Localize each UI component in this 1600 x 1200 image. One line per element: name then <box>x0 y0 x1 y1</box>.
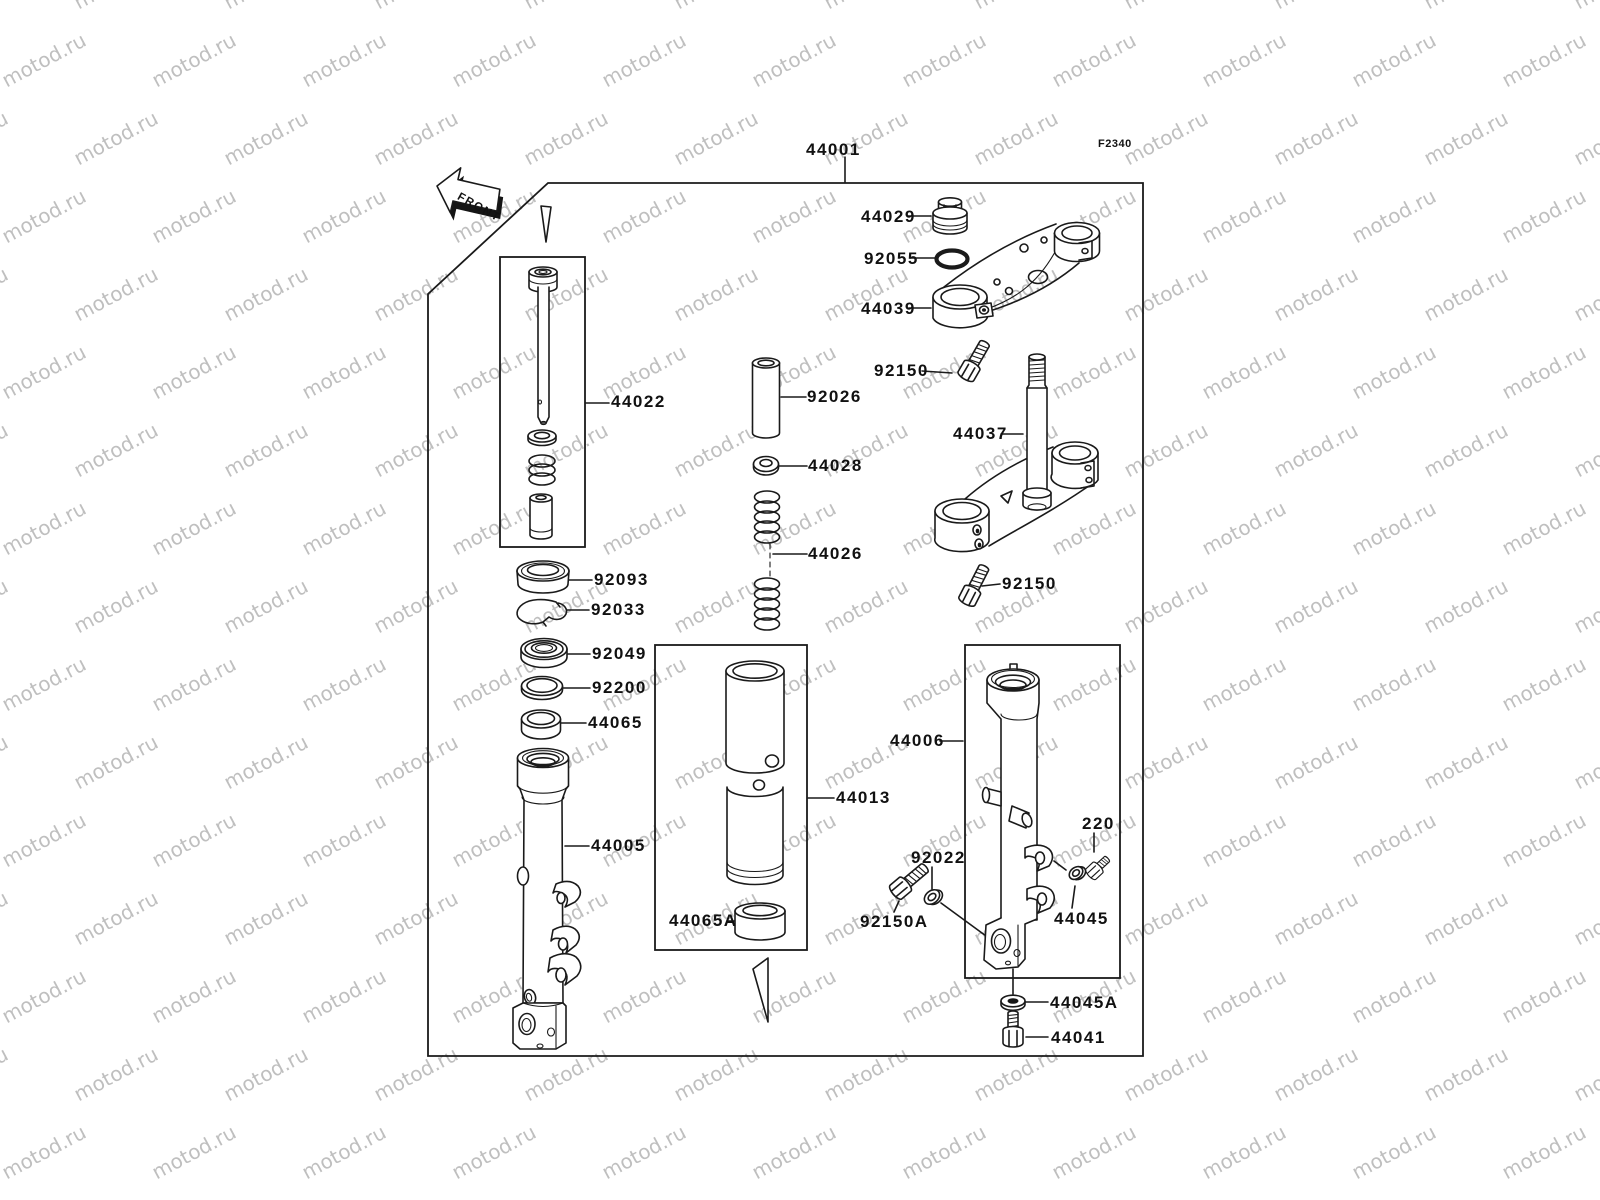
part-label-92033: 92033 <box>591 600 646 620</box>
part-label-92150-upper: 92150 <box>874 361 929 381</box>
bolt-220 <box>1084 853 1113 881</box>
o-ring-drawing <box>937 251 968 268</box>
part-label-220: 220 <box>1082 814 1115 834</box>
damper-rod-kit-drawing <box>528 267 557 539</box>
part-label-44045: 44045 <box>1054 909 1109 929</box>
parts-diagram-drawing: FRONT <box>0 0 1600 1200</box>
part-label-44005: 44005 <box>591 836 646 856</box>
part-label-44013: 44013 <box>836 788 891 808</box>
outer-tube-44005-drawing <box>513 749 581 1050</box>
fork-spring-drawing <box>755 491 780 630</box>
bushing-44065-drawing <box>522 710 561 739</box>
pointer-wedge-center <box>753 958 768 1022</box>
part-label-44026: 44026 <box>808 544 863 564</box>
part-label-92150-lower: 92150 <box>1002 574 1057 594</box>
part-label-44039: 44039 <box>861 299 916 319</box>
washer-44028 <box>754 457 779 476</box>
retaining-clip-92033-drawing <box>517 600 566 626</box>
part-label-92093: 92093 <box>594 570 649 590</box>
fork-cap-drawing <box>933 198 967 234</box>
part-label-44041: 44041 <box>1051 1028 1106 1048</box>
washer-44045a <box>1001 995 1025 1010</box>
figure-code-label: F2340 <box>1098 137 1132 151</box>
part-label-92022: 92022 <box>911 848 966 868</box>
part-label-92200: 92200 <box>592 678 647 698</box>
part-label-44065a: 44065A <box>669 911 738 931</box>
dust-seal-92093-drawing <box>517 561 569 593</box>
part-label-44045a: 44045A <box>1050 993 1119 1013</box>
parts-diagram-page: motod.rumotod.rumotod.rumotod.rumotod.ru… <box>0 0 1600 1200</box>
washer-44045 <box>1067 863 1088 884</box>
oil-seal-92049-drawing <box>521 639 567 668</box>
washer-92200-drawing <box>522 677 563 700</box>
part-label-44029: 44029 <box>861 207 916 227</box>
fork-assembly-44006-drawing <box>983 664 1055 969</box>
bolt-92150-upper <box>956 337 993 383</box>
inner-tube-44013-drawing <box>726 661 785 940</box>
upper-triple-clamp-drawing <box>933 223 1100 328</box>
part-label-44065: 44065 <box>588 713 643 733</box>
part-label-44028: 44028 <box>808 456 863 476</box>
spacer-tube-drawing <box>753 358 780 438</box>
part-label-92026: 92026 <box>807 387 862 407</box>
part-label-44037: 44037 <box>953 424 1008 444</box>
part-label-92055: 92055 <box>864 249 919 269</box>
part-label-44022: 44022 <box>611 392 666 412</box>
bolt-44041 <box>1003 1011 1023 1047</box>
part-label-44001: 44001 <box>806 140 861 160</box>
front-arrow: FRONT <box>430 164 510 231</box>
pointer-wedge-left <box>541 206 551 242</box>
steering-stem-drawing <box>935 354 1098 552</box>
part-label-92150a: 92150A <box>860 912 929 932</box>
part-label-44006: 44006 <box>890 731 945 751</box>
part-label-92049: 92049 <box>592 644 647 664</box>
washer-92022 <box>922 886 946 909</box>
